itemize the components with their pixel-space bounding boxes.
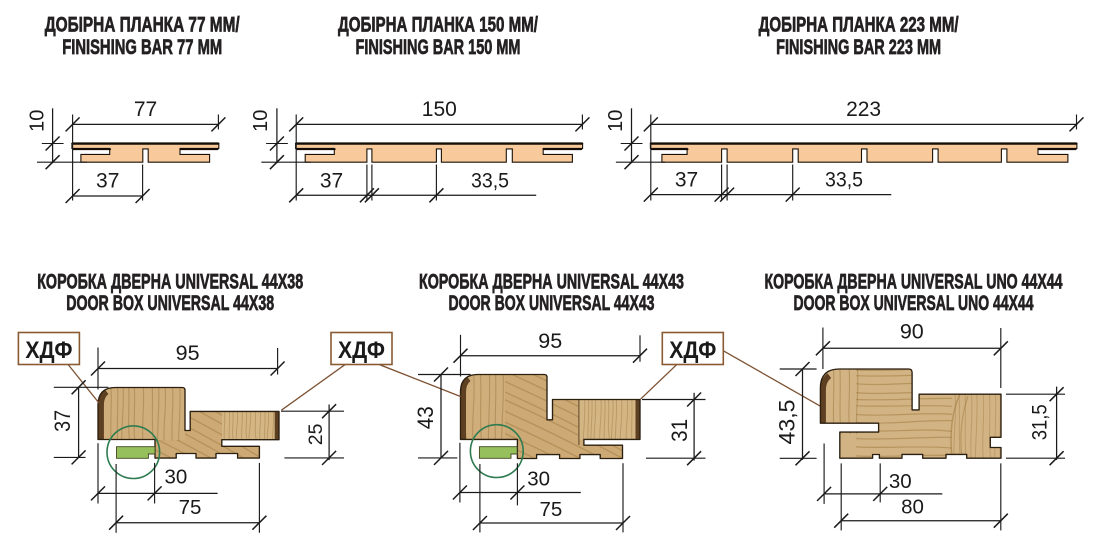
svg-text:30: 30 [527,468,550,491]
svg-text:77: 77 [134,98,157,121]
svg-text:75: 75 [539,498,562,521]
svg-text:ХДФ: ХДФ [669,337,716,364]
svg-text:37: 37 [96,169,119,192]
svg-text:75: 75 [179,496,202,519]
svg-text:33,5: 33,5 [825,169,863,192]
svg-text:DOOR BOX UNIVERSAL 44X43: DOOR BOX UNIVERSAL 44X43 [449,291,655,315]
svg-text:10: 10 [605,110,627,132]
svg-text:ХДФ: ХДФ [25,337,72,364]
svg-text:95: 95 [538,329,562,353]
svg-text:ДОБІРНА ПЛАНКА 223 ММ/: ДОБІРНА ПЛАНКА 223 ММ/ [759,12,959,36]
svg-text:30: 30 [889,470,912,493]
svg-text:31,5: 31,5 [1027,404,1051,440]
svg-text:DOOR BOX UNIVERSAL UNO 44X44: DOOR BOX UNIVERSAL UNO 44X44 [794,291,1034,315]
svg-text:ДОБІРНА ПЛАНКА 77 ММ/: ДОБІРНА ПЛАНКА 77 ММ/ [45,12,240,36]
svg-text:FINISHING BAR 223 MM: FINISHING BAR 223 MM [776,35,941,59]
svg-text:ХДФ: ХДФ [338,337,385,364]
svg-text:КОРОБКА ДВЕРНА UNIVERSAL 44X43: КОРОБКА ДВЕРНА UNIVERSAL 44X43 [419,269,684,293]
svg-text:КОРОБКА ДВЕРНА UNIVERSAL 44X38: КОРОБКА ДВЕРНА UNIVERSAL 44X38 [37,269,303,293]
svg-text:DOOR BOX UNIVERSAL 44X38: DOOR BOX UNIVERSAL 44X38 [66,291,274,315]
svg-text:43: 43 [413,406,438,429]
svg-text:33,5: 33,5 [471,169,509,192]
svg-text:95: 95 [176,341,200,365]
svg-text:30: 30 [164,465,187,488]
svg-text:223: 223 [846,98,881,121]
svg-text:КОРОБКА ДВЕРНА UNIVERSAL UNO 4: КОРОБКА ДВЕРНА UNIVERSAL UNO 44X44 [765,269,1063,293]
svg-text:37: 37 [50,410,75,432]
svg-text:FINISHING BAR 77 MM: FINISHING BAR 77 MM [62,35,222,59]
svg-text:10: 10 [26,110,48,132]
svg-text:ДОБІРНА ПЛАНКА 150 ММ/: ДОБІРНА ПЛАНКА 150 ММ/ [338,12,538,36]
svg-text:37: 37 [320,169,343,192]
svg-text:80: 80 [901,496,924,519]
svg-text:31: 31 [667,419,692,442]
svg-text:37: 37 [675,169,698,192]
svg-text:150: 150 [422,98,457,121]
svg-text:25: 25 [305,423,327,445]
svg-text:10: 10 [250,110,272,132]
svg-text:43,5: 43,5 [775,400,800,445]
svg-text:FINISHING BAR 150 MM: FINISHING BAR 150 MM [356,35,521,59]
svg-text:90: 90 [900,320,924,344]
